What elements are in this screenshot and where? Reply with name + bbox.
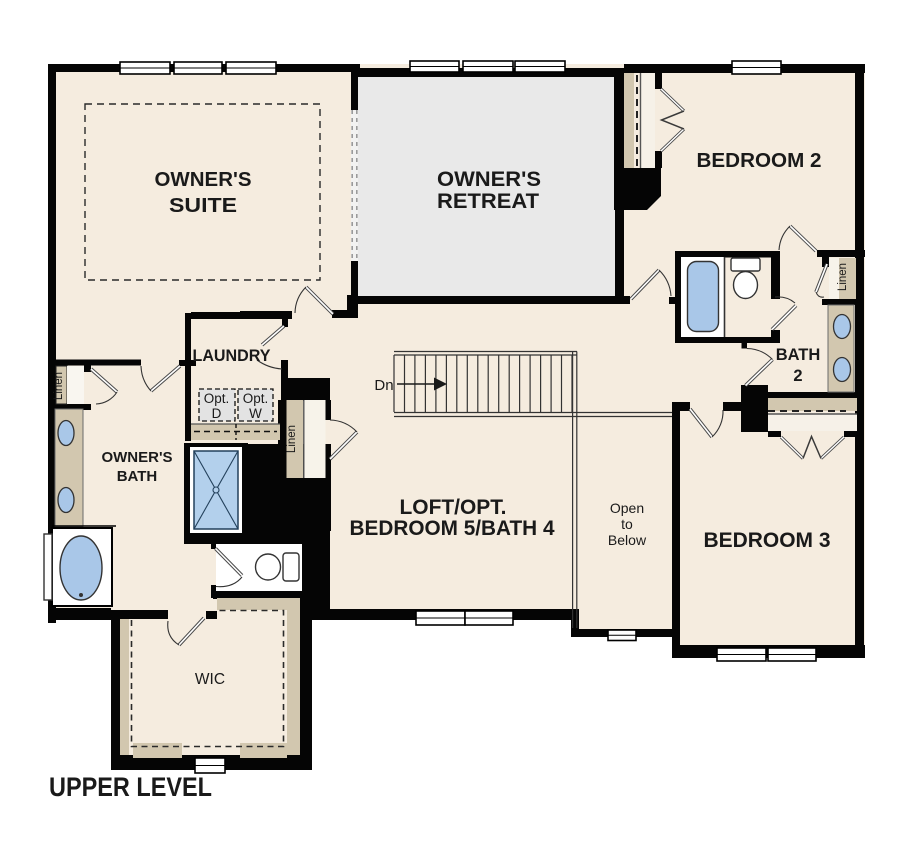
svg-text:to: to bbox=[621, 516, 633, 532]
svg-text:OWNER'S: OWNER'S bbox=[101, 449, 172, 466]
svg-text:SUITE: SUITE bbox=[169, 194, 237, 217]
svg-text:Opt.: Opt. bbox=[204, 391, 230, 406]
svg-text:BATH: BATH bbox=[117, 468, 158, 485]
svg-text:Linen: Linen bbox=[53, 372, 65, 400]
svg-text:LAUNDRY: LAUNDRY bbox=[193, 347, 271, 365]
svg-text:BEDROOM 3: BEDROOM 3 bbox=[704, 529, 831, 552]
svg-text:Linen: Linen bbox=[837, 263, 849, 291]
svg-text:BATH: BATH bbox=[776, 346, 821, 364]
svg-text:OWNER'S: OWNER'S bbox=[437, 168, 541, 191]
svg-text:Open: Open bbox=[610, 500, 644, 516]
svg-text:LOFT/OPT.: LOFT/OPT. bbox=[400, 496, 507, 519]
svg-text:WIC: WIC bbox=[195, 671, 225, 688]
svg-text:2: 2 bbox=[793, 367, 802, 385]
svg-text:UPPER LEVEL: UPPER LEVEL bbox=[49, 772, 212, 802]
svg-text:BEDROOM 2: BEDROOM 2 bbox=[697, 150, 822, 172]
svg-text:BEDROOM 5/BATH 4: BEDROOM 5/BATH 4 bbox=[350, 517, 555, 540]
svg-text:RETREAT: RETREAT bbox=[437, 190, 539, 213]
svg-text:OWNER'S: OWNER'S bbox=[155, 168, 252, 191]
svg-text:Dn: Dn bbox=[374, 377, 393, 394]
svg-text:W: W bbox=[249, 406, 262, 421]
svg-text:D: D bbox=[212, 406, 222, 421]
svg-text:Below: Below bbox=[608, 532, 647, 548]
svg-text:Opt.: Opt. bbox=[243, 391, 269, 406]
svg-text:Linen: Linen bbox=[286, 425, 298, 453]
